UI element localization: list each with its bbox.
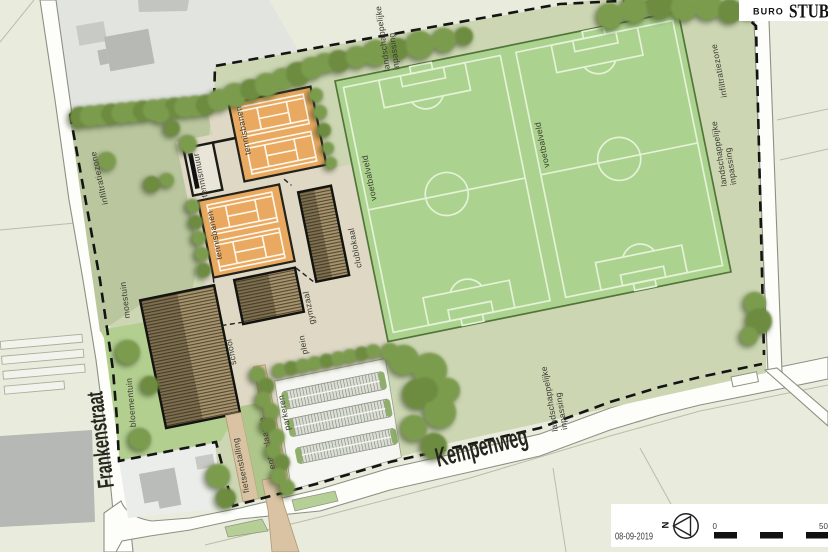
svg-text:STUB: STUB [789,1,828,23]
svg-text:N: N [661,522,672,529]
svg-text:50: 50 [819,522,828,531]
svg-text:0: 0 [713,522,718,531]
svg-text:08-09-2019: 08-09-2019 [615,532,653,543]
svg-text:BURO: BURO [753,7,784,17]
